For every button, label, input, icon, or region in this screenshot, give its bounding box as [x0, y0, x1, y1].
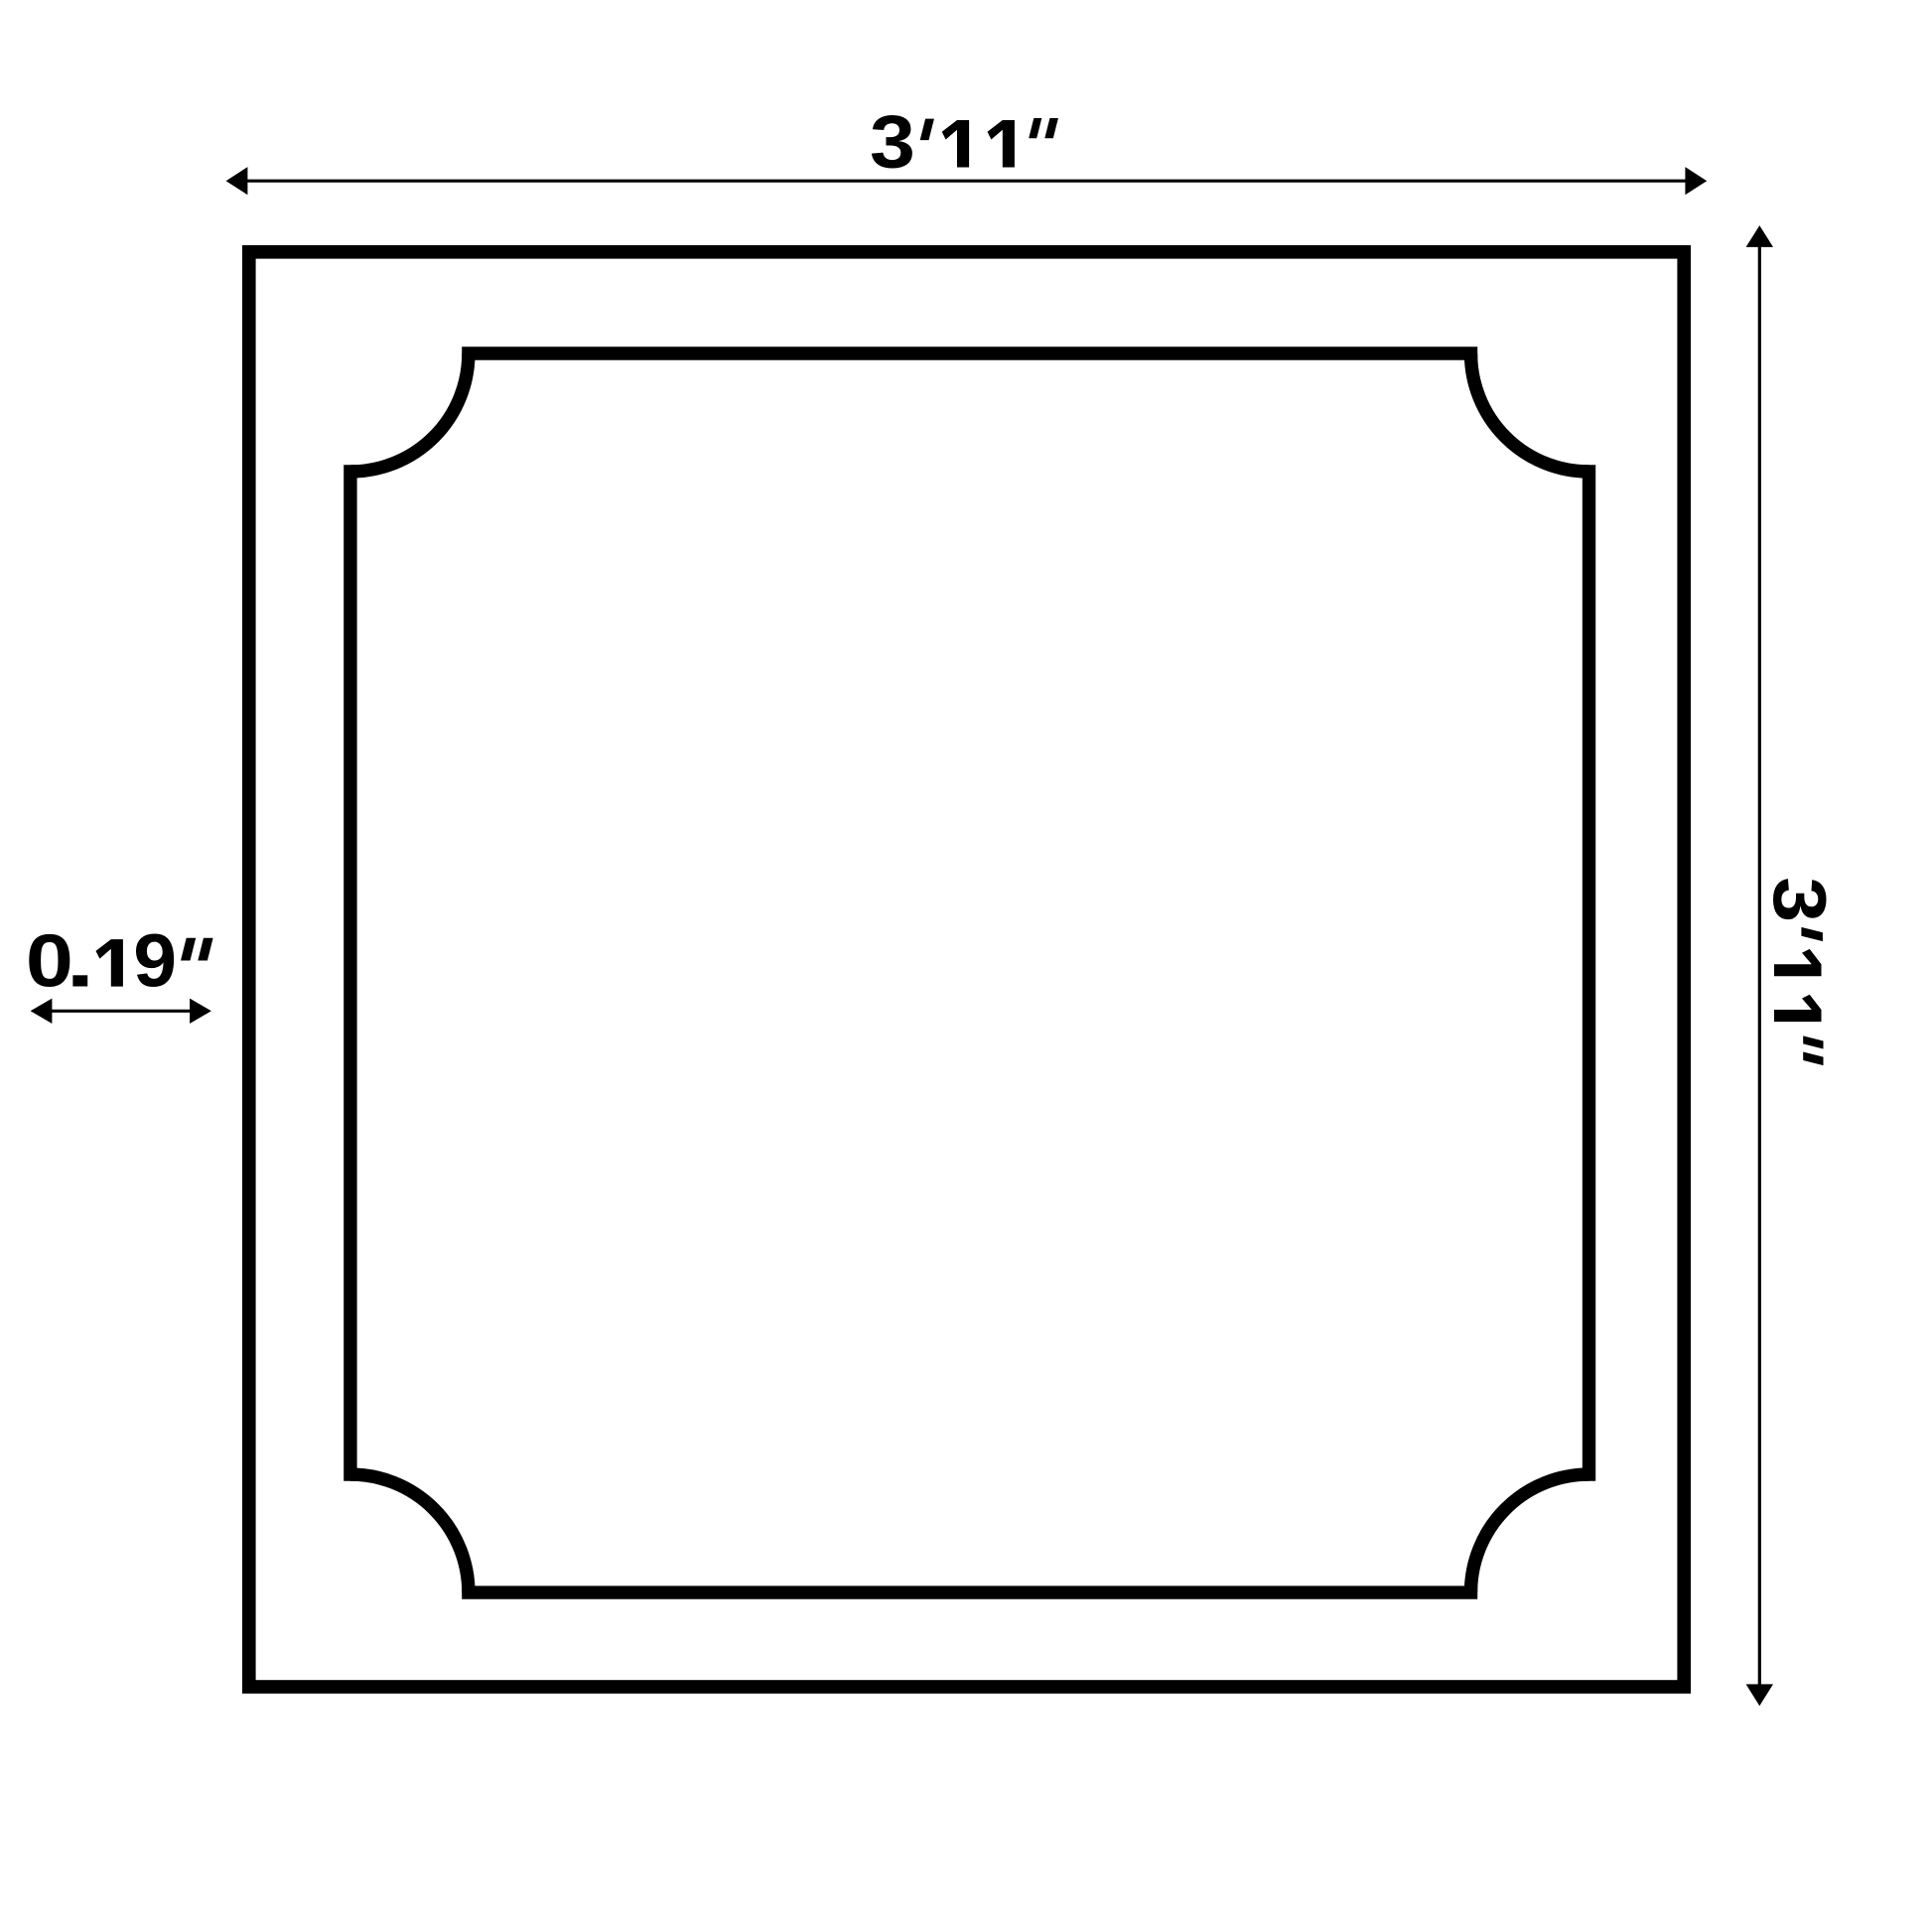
svg-text:9: 9	[133, 919, 177, 1003]
svg-text:.: .	[66, 919, 94, 1003]
